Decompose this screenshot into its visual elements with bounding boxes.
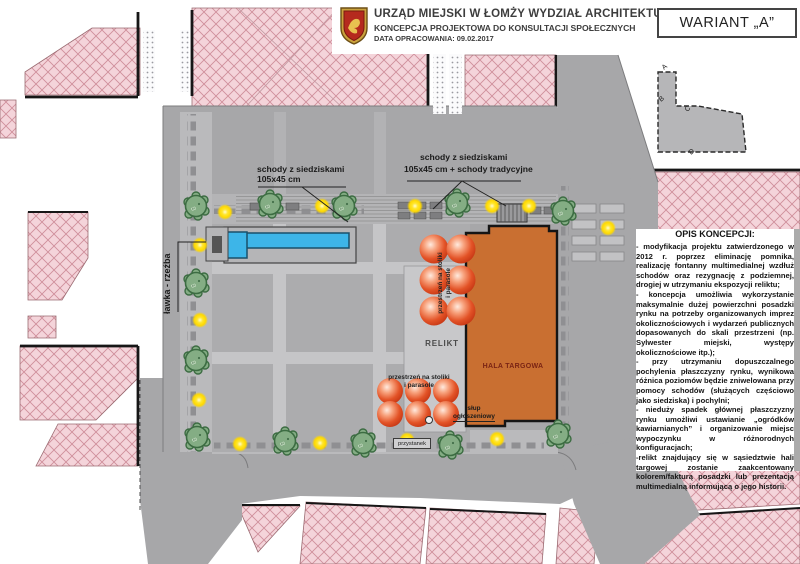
- umbrella-icon: [377, 401, 403, 427]
- tables-lower-label: przestrzeń na stoliki i parasole: [372, 374, 466, 389]
- variant-box: WARIANT „A”: [657, 8, 797, 38]
- right-scroll-strip: [794, 229, 800, 471]
- market-hall-building: [466, 226, 557, 426]
- stairs-right-label-line1: schody z siedziskami: [420, 152, 507, 162]
- lomza-coat-of-arms-icon: [338, 6, 370, 46]
- stairs-left-label-line2: 105x45 cm: [257, 174, 301, 184]
- street-lamp-icon: [192, 237, 208, 253]
- tables-upper-line2: i parasole: [445, 233, 453, 333]
- street-lamp-icon: [232, 436, 248, 452]
- description-paragraph: - nieduży spadek głównej płaszczyzny ryn…: [636, 405, 794, 453]
- street-lamp-icon: [191, 392, 207, 408]
- street-lamp-icon: [192, 312, 208, 328]
- street-lamp-icon: [600, 220, 616, 236]
- advertising-column-icon: [426, 417, 433, 424]
- plan-sheet: 50: [0, 0, 800, 564]
- tables-lower-line2: i parasole: [372, 382, 466, 390]
- fountain: [224, 227, 356, 263]
- street-lamp-icon: [217, 204, 233, 220]
- stairs-right-label-line2: 105x45 cm + schody tradycyjne: [404, 164, 533, 174]
- tables-upper-line1: przestrzeń na stoliki: [437, 233, 445, 333]
- advert-column-line1: słup: [446, 405, 502, 413]
- relic-label: RELIKT: [418, 339, 466, 348]
- market-hall-label: HALA TARGOWA: [467, 363, 559, 370]
- street-lamp-icon: [521, 198, 537, 214]
- street-lamp-icon: [407, 198, 423, 214]
- description-paragraph: - modyfikacja projektu zatwierdzonego w …: [636, 242, 794, 290]
- description-paragraph: - koncepcja umożliwia wykorzystanie maks…: [636, 290, 794, 357]
- description-title: OPIS KONCEPCJI:: [636, 229, 794, 239]
- stairs-left-label-line1: schody z siedziskami: [257, 164, 344, 174]
- advert-column-line2: ogłoszeniowy: [453, 413, 495, 422]
- advert-column-label: słup ogłoszeniowy: [446, 405, 502, 422]
- street-lamp-icon: [489, 431, 505, 447]
- bench-sculpture: [206, 227, 228, 261]
- corner-building: [658, 72, 746, 152]
- tables-lower-line1: przestrzeń na stoliki: [372, 374, 466, 382]
- tables-upper-label: przestrzeń na stoliki i parasole: [437, 233, 452, 333]
- concept-description-panel: OPIS KONCEPCJI: - modyfikacja projektu z…: [636, 229, 794, 471]
- street-lamp-icon: [312, 435, 328, 451]
- page-subtitle: KONCEPCJA PROJEKTOWA DO KONSULTACJI SPOŁ…: [374, 23, 636, 33]
- date-line: DATA OPRACOWANIA: 09.02.2017: [374, 34, 494, 43]
- bus-stop-label: przystanek: [393, 438, 431, 449]
- section-letter-a: A: [661, 63, 669, 72]
- street-lamp-icon: [484, 198, 500, 214]
- description-paragraph: -relikt znajdujący się w sąsiedztwie hal…: [636, 453, 794, 491]
- bench-sculpture-label: ławka - rzeźba: [162, 230, 172, 314]
- description-paragraph: - przy utrzymaniu dopuszczalnego pochyle…: [636, 357, 794, 405]
- page-title: URZĄD MIEJSKI W ŁOMŻY WYDZIAŁ ARCHITEKTU…: [374, 8, 678, 20]
